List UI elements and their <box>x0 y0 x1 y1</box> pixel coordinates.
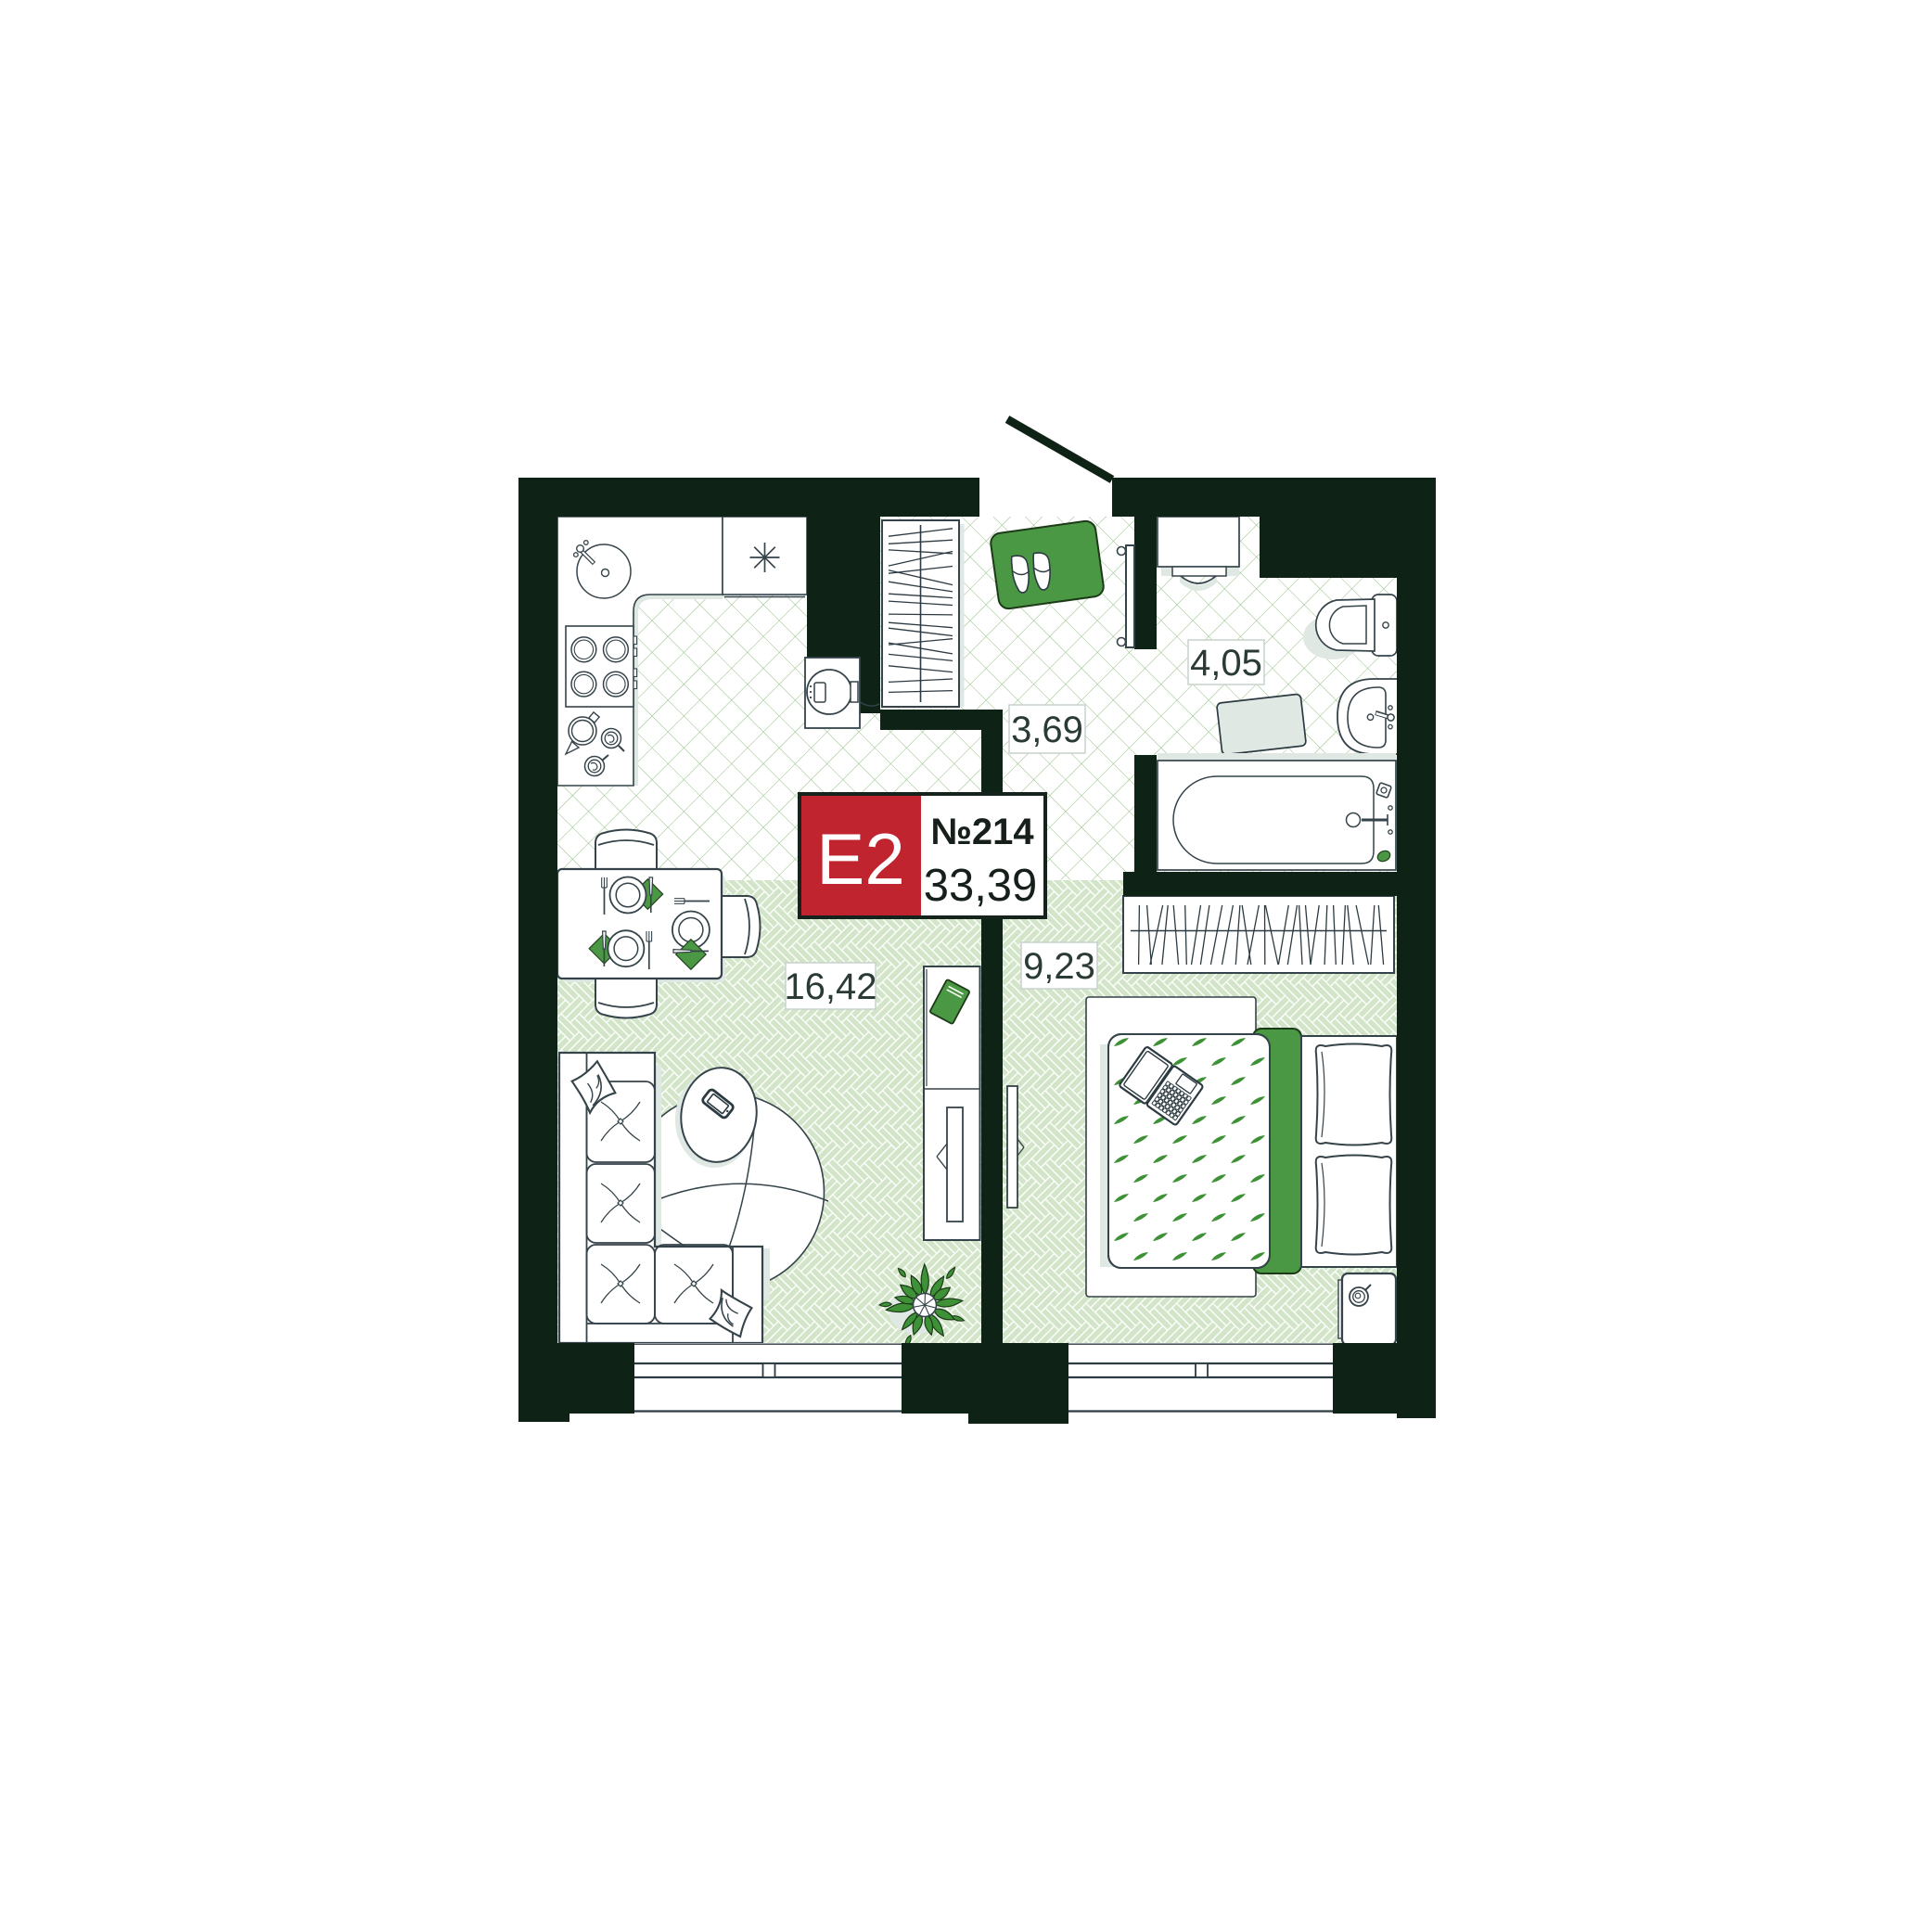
svg-text:3,69: 3,69 <box>1011 710 1083 750</box>
svg-text:Е2: Е2 <box>816 818 904 900</box>
svg-text:33,39: 33,39 <box>924 861 1038 911</box>
svg-text:№214: №214 <box>930 812 1034 852</box>
svg-text:9,23: 9,23 <box>1023 946 1095 987</box>
svg-text:16,42: 16,42 <box>784 966 876 1007</box>
svg-text:4,05: 4,05 <box>1190 643 1262 684</box>
